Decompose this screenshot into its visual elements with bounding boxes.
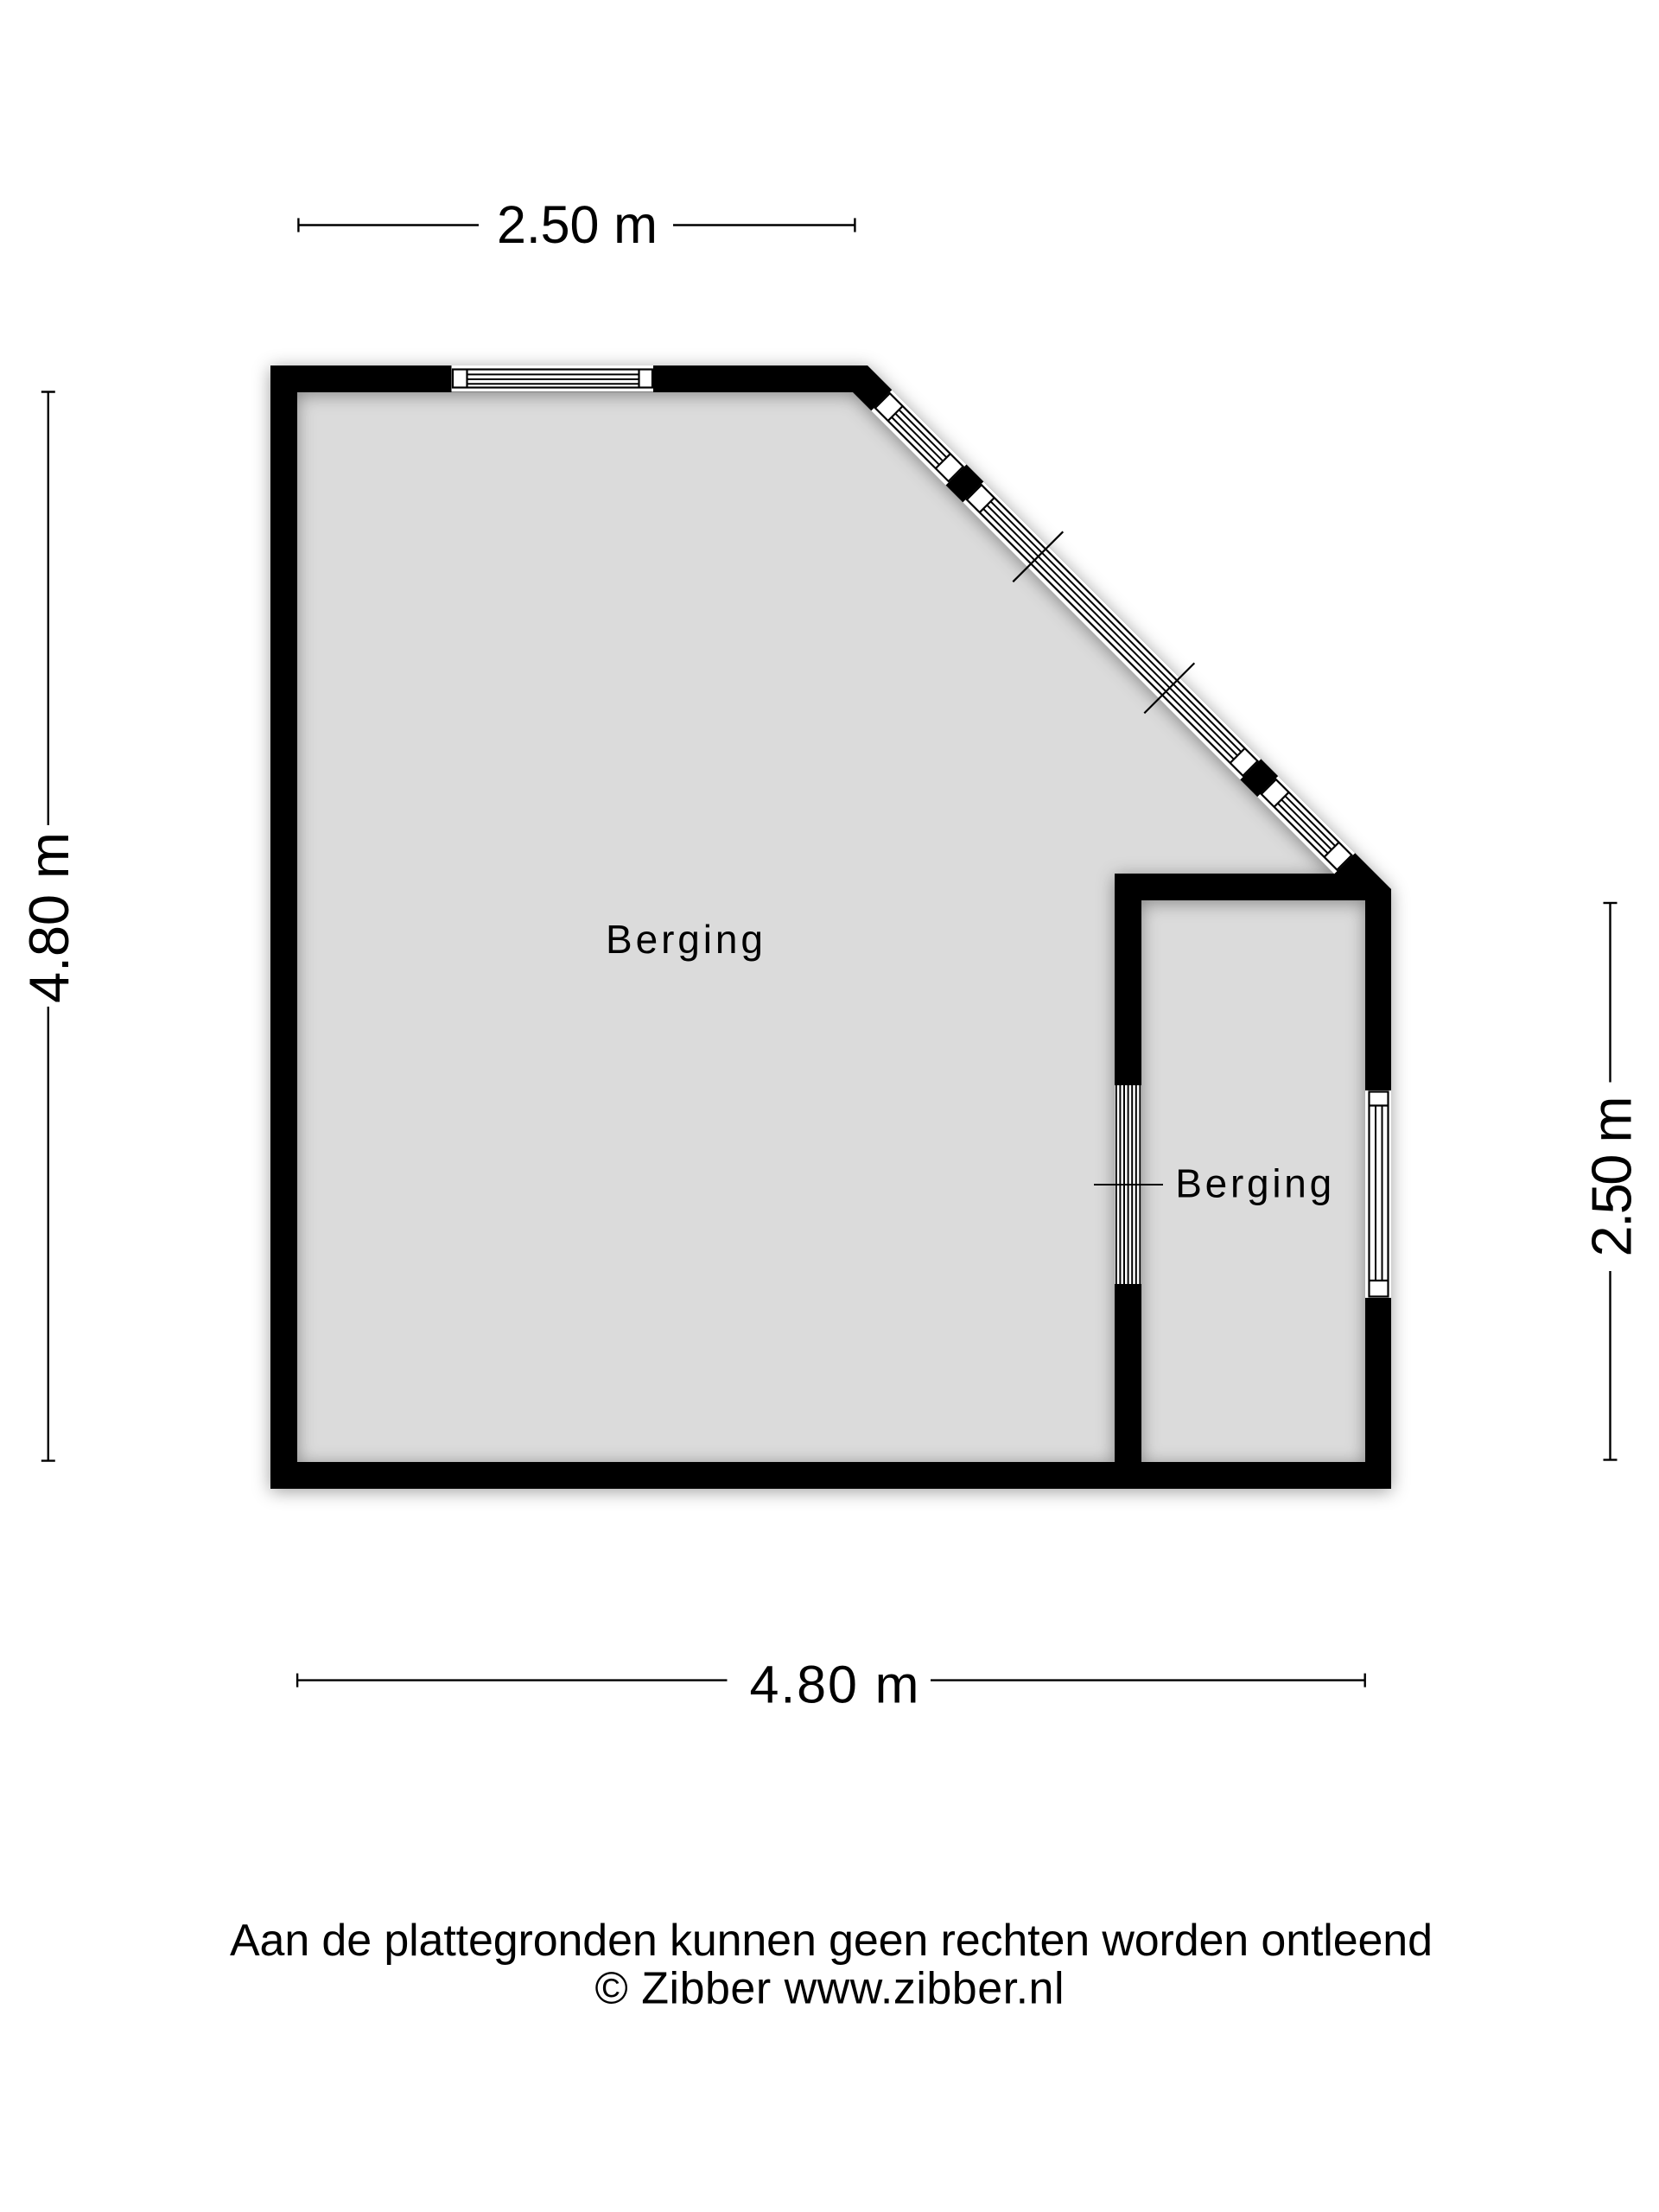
svg-text:4.80 m: 4.80 m bbox=[17, 832, 80, 1003]
svg-text:Aan de plattegronden kunnen ge: Aan de plattegronden kunnen geen rechten… bbox=[230, 1916, 1433, 1966]
svg-text:2.50 m: 2.50 m bbox=[497, 195, 658, 254]
svg-text:4.80 m: 4.80 m bbox=[750, 1655, 919, 1713]
svg-text:© Zibber www.zibber.nl: © Zibber www.zibber.nl bbox=[595, 1964, 1065, 2014]
svg-text:2.50 m: 2.50 m bbox=[1580, 1096, 1643, 1257]
